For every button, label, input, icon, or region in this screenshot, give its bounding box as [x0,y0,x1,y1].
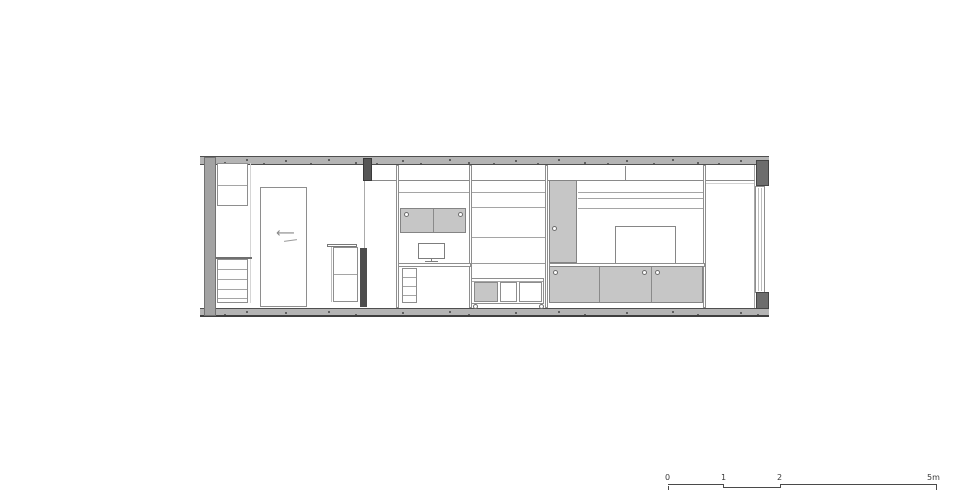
window-head-block [756,160,769,186]
scale-label-5m: 5m [927,474,940,482]
media-cabinet-handle-2 [642,270,647,275]
door-panel [260,187,307,307]
media-cabinet-handle-1 [553,270,558,275]
scalebar-seg-2 [723,487,781,488]
partition-line [364,181,365,248]
scale-label-1: 1 [721,474,726,482]
window-sill-block [756,292,769,309]
shelf-line-mid-3 [471,263,545,264]
window-glazing [755,186,765,293]
drawer-line-1 [218,269,247,270]
window-glazing-line-1 [758,188,759,291]
floor-slab [200,308,769,317]
side-table-shelf [334,274,357,275]
drawer-line-3 [218,289,247,290]
media-cabinet-divider-2 [651,267,652,302]
drawer-unit [217,259,248,303]
window-glazing-line-2 [761,188,762,291]
drawer-line-4 [218,298,247,299]
shelf-panel-1 [396,165,399,308]
shelf-line-tv-3 [578,208,705,209]
drawing-canvas: ⟵ [0,0,970,500]
architectural-section-page: ⟵ 0 1 2 5m [0,0,970,500]
scalebar-seg-3 [780,484,937,485]
cart-cubby-1 [500,282,517,302]
scalebar-tick-end [936,485,937,490]
upper-cabinet-shelf [218,185,247,186]
media-cabinet-handle-3 [655,270,660,275]
shelf-line-tv-1 [578,192,705,193]
cart-wheel-left [473,304,478,309]
cubby-divider [625,166,626,180]
scale-label-0: 0 [665,474,670,482]
scalebar-seg-1 [668,484,724,485]
scale-label-2: 2 [777,474,782,482]
wall-cabinet-handle-right [458,212,463,217]
desk-surface [398,263,471,267]
door-track-block [363,158,372,181]
shelf-panel-4 [703,165,706,308]
side-table-leg [331,247,332,302]
shelf-line-mid-1 [471,207,545,208]
cart-wheel-right [539,304,544,309]
shelf-line-right [706,183,754,184]
shelf-line-mid-2 [471,237,545,238]
tall-cabinet-door-handle [552,226,557,231]
tall-cabinet-door [549,180,577,263]
scalebar-tick-0 [668,486,669,490]
wall-cabinet-handle-left [404,212,409,217]
monitor [418,243,445,259]
door-swing-arrow: ⟵ [276,227,295,240]
cart-cubby-2 [519,282,542,302]
desk-shelf-line-1 [403,277,416,278]
tv-screen [615,226,676,264]
ceiling-slab [200,156,769,165]
drawer-line-2 [218,279,247,280]
desk-shelf-line-2 [403,286,416,287]
media-cabinet-divider-1 [599,267,600,302]
media-cabinet [549,266,703,303]
cabinet-side-line [250,163,251,303]
shelf-panel-3 [545,165,548,308]
partition-post [360,248,367,307]
desk-shelf-line-3 [403,295,416,296]
monitor-base [425,261,438,262]
cart-door [474,282,498,302]
left-wall [204,157,216,316]
shelf-line-tv-2 [578,198,705,199]
wall-cabinet-divider [433,209,434,232]
